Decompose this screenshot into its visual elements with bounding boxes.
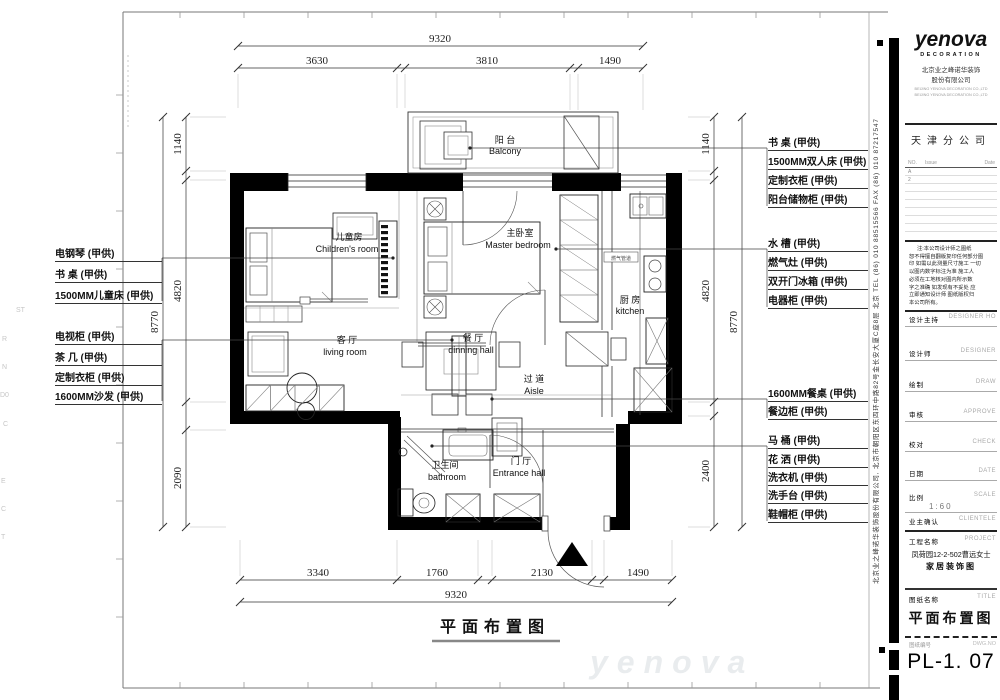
material-label-left: 茶 几 (甲供) [55, 352, 162, 366]
company-name-en: BEIJING YENOVA DECORATION CO.,LTD [905, 87, 997, 91]
project-name-line2: 家居装饰图 [905, 561, 997, 572]
field-date: 日期 [909, 468, 924, 478]
room-label-dining-en: dinning hall [448, 345, 494, 355]
room-label-bathroom: 卫生间 [431, 459, 458, 470]
company-logo-sub: DECORATION [905, 52, 997, 58]
room-label-living: 客 厅 [337, 334, 358, 345]
rev-line [905, 191, 997, 192]
field-project-en: PROJECT [964, 536, 996, 542]
company-name-cn: 股份有限公司 [905, 74, 997, 84]
gas-pipe-label: 燃气管道 [611, 255, 631, 262]
margin-char: T [1, 534, 6, 541]
plan-title-group: 平面布置图 [432, 617, 560, 641]
field-client-confirm: 业主确认 [909, 516, 939, 526]
sink [630, 194, 666, 218]
project-name-line1: 凤荷园12-2-502曹远女士 [905, 550, 997, 560]
dim-left-seg: 2090 [172, 467, 184, 490]
room-label-aisle: 过 道 [524, 373, 545, 384]
dim-bottom-seg: 2130 [531, 567, 554, 579]
rev-line [905, 175, 997, 176]
material-label-right: 鞋帽柜 (甲供) [768, 509, 868, 523]
material-label-right: 定制衣柜 (甲供) [768, 175, 868, 189]
dim-bottom-total: 9320 [445, 589, 468, 601]
room-label-children: 儿童房 [335, 231, 362, 242]
room-label-kitchen-en: kitchen [616, 306, 645, 316]
divider [905, 310, 997, 312]
drawing-sheet: yenova ST R N D0 C E C T [0, 0, 1000, 700]
material-label-left: 电钢琴 (甲供) [55, 248, 162, 262]
material-label-right: 花 洒 (甲供) [768, 454, 868, 468]
dim-left-seg: 1140 [172, 133, 184, 155]
field-approve: 审核 [909, 409, 924, 419]
divider [905, 167, 997, 168]
side-company-address: 北京业之峰诺华装饰股份有限公司, 北京市朝阳区东四环中路82号金长安大厦C座8层… [870, 1, 884, 700]
material-label-right: 餐边柜 (甲供) [768, 406, 868, 420]
disclaimer-line: 立即通知设计师 图纸版权归 [909, 292, 994, 300]
field-line [905, 360, 997, 361]
margin-char: C [3, 421, 8, 428]
field-line [905, 326, 997, 327]
company-logo: yenova [905, 28, 997, 52]
margin-char: C [1, 506, 6, 513]
rev-line [905, 223, 997, 224]
room-label-master: 主卧室 [506, 227, 533, 238]
dim-bottom-seg: 3340 [307, 567, 330, 579]
material-label-right: 马 桶 (甲供) [768, 435, 868, 449]
field-designer: 设计师 [909, 348, 932, 358]
material-label-right: 电器柜 (甲供) [768, 295, 868, 309]
material-label-left: 1600MM沙发 (甲供) [55, 391, 162, 405]
dim-right-seg: 4820 [700, 280, 712, 303]
field-project: 工程名称 [909, 536, 939, 546]
field-designer-host: 设计主持 [909, 314, 939, 324]
room-label-living-en: living room [323, 347, 367, 357]
field-scale: 比例 [909, 492, 924, 502]
entrance-arrow [556, 542, 588, 566]
field-check: 校对 [909, 439, 924, 449]
room-label-aisle-en: Aisle [524, 386, 544, 396]
margin-char: N [2, 364, 7, 371]
divider [905, 240, 997, 242]
tea-table [287, 373, 317, 403]
dim-left-seg: 4820 [172, 280, 184, 303]
rev-issue-header: Issue [925, 160, 937, 166]
field-dwg-no-en: DWG.NO [973, 641, 996, 647]
room-label-balcony: 阳 台 [495, 134, 516, 145]
wardrobe [560, 195, 598, 322]
room-label-dining: 餐 厅 [463, 332, 484, 343]
dim-right-seg: 2400 [700, 460, 712, 483]
room-label-children-en: Children's room [316, 244, 379, 254]
field-sheet-name: 图纸名称 [909, 594, 939, 604]
field-scale-en: SCALE [974, 492, 996, 498]
margin-char: R [2, 336, 7, 343]
field-dwg-no: 图纸编号 [909, 641, 931, 649]
dining-table [426, 332, 496, 390]
master-bedroom-furniture [418, 191, 598, 346]
room-label-bathroom-en: bathroom [428, 472, 466, 482]
divider [905, 588, 997, 590]
rev-line [905, 199, 997, 200]
material-label-right: 1600MM餐桌 (甲供) [768, 388, 868, 402]
field-approve-en: APPROVE [963, 409, 996, 415]
rev-line [905, 231, 997, 232]
disclaimer-line: 必须在工地核对图内所示数 [909, 277, 994, 285]
field-date-en: DATE [978, 468, 996, 474]
rev-date-header: Date [984, 160, 995, 166]
divider-dashed [905, 636, 997, 638]
branch-name: 天津分公司 [905, 132, 997, 147]
rev-no-header: NO. [908, 160, 917, 166]
sheet-title-value: 平面布置图 [905, 608, 997, 628]
living-room-furniture [246, 332, 466, 420]
material-label-right: 洗衣机 (甲供) [768, 472, 868, 486]
field-line [905, 451, 997, 452]
drawing-number: PL-1. 07 [905, 650, 997, 674]
material-label-right: 洗手台 (甲供) [768, 490, 868, 504]
material-label-right: 水 槽 (甲供) [768, 238, 868, 252]
dining-furniture [402, 332, 626, 415]
children-bed [246, 228, 332, 302]
room-label-kitchen: 厨 房 [620, 294, 641, 305]
material-label-left: 电视柜 (甲供) [55, 331, 162, 345]
rev-line [905, 215, 997, 216]
material-label-right: 书 桌 (甲供) [768, 137, 868, 151]
dim-bottom-seg: 1490 [627, 567, 650, 579]
divider [905, 530, 997, 532]
field-draw: 绘制 [909, 379, 924, 389]
dim-top-total: 9320 [429, 33, 452, 45]
room-label-entrance-en: Entrance hall [493, 468, 546, 478]
room-label-entrance: 门 厅 [511, 455, 532, 466]
dim-top-seg: 3630 [306, 55, 329, 67]
company-name-cn: 北京业之峰诺华装饰 [905, 64, 997, 74]
field-designer-host-en: DESIGNER HO [948, 314, 996, 320]
material-label-right: 双开门冰箱 (甲供) [768, 276, 868, 290]
disclaimer-line: 本公司所有。 [909, 300, 994, 308]
margin-char: D0 [0, 392, 9, 399]
disclaimer-line: 印 如需以此测量尺寸施工 一切 [909, 261, 994, 269]
margin-marks: ST R N D0 C E C T [0, 307, 26, 541]
field-sheet-name-en: TITLE [977, 594, 996, 600]
dim-bottom-seg: 1760 [426, 567, 449, 579]
material-label-right: 阳台储物柜 (甲供) [768, 194, 868, 208]
company-name-en: BEIJING YENOVA DECORATION CO.,LTD [905, 93, 997, 97]
material-label-right: 1500MM双人床 (甲供) [768, 156, 868, 170]
scale-value: 1:60 [929, 502, 953, 511]
plan-title: 平面布置图 [440, 617, 550, 636]
field-line [905, 480, 997, 481]
dim-left-outer: 8770 [149, 311, 161, 334]
field-line [905, 391, 997, 392]
bathroom-entrance-fixtures [398, 418, 614, 587]
disclaimer: 注:本公司设计师之图纸 恕不得擅自翻版复印任何部分图 印 如需以此测量尺寸施工 … [909, 246, 994, 308]
field-draw-en: DRAW [976, 379, 996, 385]
watermark: yenova [590, 644, 890, 681]
margin-char: ST [16, 307, 26, 314]
field-client-confirm-en: CLIENTELE [959, 516, 996, 522]
title-block: yenova DECORATION 北京业之峰诺华装饰 股份有限公司 BEIJI… [905, 0, 998, 700]
dim-top-seg: 1490 [599, 55, 622, 67]
divider [905, 123, 997, 125]
dim-right-seg: 1140 [700, 133, 712, 155]
material-label-left: 定制衣柜 (甲供) [55, 372, 162, 386]
field-designer-en: DESIGNER [961, 348, 996, 354]
material-label-right: 燃气灶 (甲供) [768, 257, 868, 271]
floor-plan: ST R N D0 C E C T [0, 0, 1000, 700]
field-check-en: CHECK [972, 439, 996, 445]
rev-line [905, 183, 997, 184]
margin-char: E [1, 478, 6, 485]
dim-top-seg: 3810 [476, 55, 499, 67]
material-label-left: 1500MM儿童床 (甲供) [55, 290, 162, 304]
disclaimer-line: 以图内数字标注为准 施工人 [909, 269, 994, 277]
material-label-left: 书 桌 (甲供) [55, 269, 162, 283]
room-label-master-en: Master bedroom [485, 240, 551, 250]
field-line [905, 512, 997, 513]
disclaimer-line: 注:本公司设计师之图纸 [909, 246, 994, 254]
field-line [905, 421, 997, 422]
room-label-balcony-en: Balcony [489, 146, 522, 156]
rev-line [905, 207, 997, 208]
children-room-furniture [246, 213, 397, 322]
dim-right-outer: 8770 [728, 311, 740, 334]
gas-stove [644, 256, 666, 292]
